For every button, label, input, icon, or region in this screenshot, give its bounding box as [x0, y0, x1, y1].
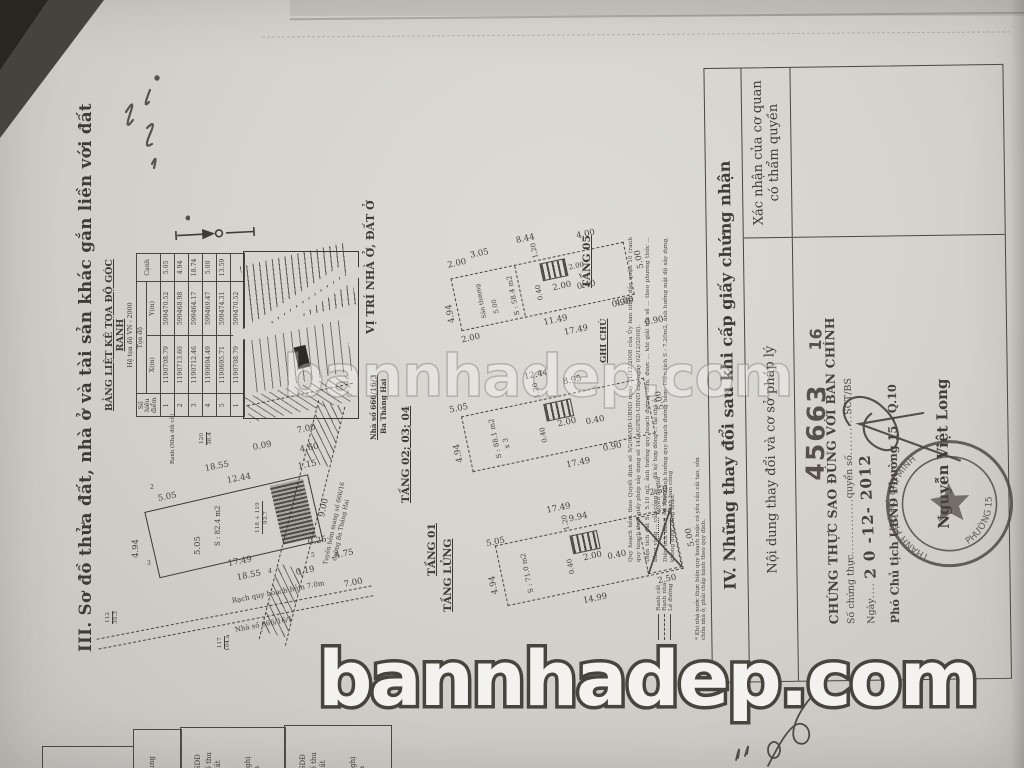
dim: 9.94	[568, 511, 589, 525]
lot-main-marker: 118 + 11993.7	[244, 501, 269, 534]
bottom-partial-box	[133, 729, 182, 768]
legend-block: Ranh cắt Ranh nhà Lề đường Tuyến lộ giới…	[656, 455, 694, 640]
lot-120-area: 38.4	[207, 432, 214, 445]
table-corner-shadow-dark	[0, 0, 48, 70]
bottom-partial-box	[42, 746, 134, 768]
plan-tang05-label: TẦNG 05	[581, 235, 593, 288]
table-row: 41190694.49599469.475.00	[203, 254, 217, 417]
col-point-header: Số hiệuđiểm	[137, 394, 161, 417]
dim: 4.94	[131, 539, 141, 558]
dim: 17.49	[565, 456, 591, 471]
col-coords-header: Tọa độ	[137, 281, 147, 394]
col-x-header: X(m)	[147, 336, 161, 394]
lot-112-number: 112	[105, 611, 113, 624]
dim: 3.05	[469, 247, 490, 261]
table-row: 11190708.79599470.525.05	[161, 254, 175, 417]
seal-bottom-text: PHƯỜNG 15	[963, 491, 998, 550]
legend-item: Ranh ban công	[668, 458, 674, 544]
col2-header-line2: có thẩm quyền	[766, 104, 784, 202]
dim: 18.55	[204, 459, 230, 473]
scanned-land-document-photo: III. Sơ đồ thửa đất, nhà ở và tài sản kh…	[0, 0, 1024, 768]
lot-117-number: 117	[217, 636, 225, 649]
coordinate-table: Số hiệuđiểm Tọa độ Cạnh X(m) Y(m) 111907…	[136, 253, 245, 417]
legend-line-sample	[670, 518, 671, 544]
lot-main-area: 93.7	[263, 511, 270, 524]
watermark-bottom: bannhadep.com	[318, 634, 977, 723]
table-row: 31190712.46599464.1718.74	[189, 254, 203, 417]
lot-main-number: 118 + 119	[255, 501, 263, 534]
legend-footnote: * Khi nhà nước thực hiện quy hoạch hoặc …	[695, 450, 708, 640]
dim: 17.49	[563, 323, 589, 338]
dim: 11.49	[543, 313, 569, 328]
col2-header-line1: Xác nhận của cơ quan	[749, 80, 767, 225]
scale-symbol	[174, 223, 259, 244]
dim: 5.05	[157, 490, 177, 503]
bottom-fragment: đất	[214, 760, 222, 768]
coordinate-table-title: BẢNG LIỆT KÊ TỌA ĐỘ GÓC RANH	[104, 253, 126, 417]
bottom-fragment: dung	[148, 756, 156, 768]
plan-tang-lung-label: TẦNG LỬNG	[442, 539, 454, 612]
bottom-fragment: số thu	[310, 752, 318, 768]
seal-star	[925, 479, 971, 527]
section4-col1-header: Nội dung thay đổi và cơ sở pháp lý	[744, 238, 799, 682]
lot-120-marker: 12038.4	[188, 432, 213, 445]
corner-point: 3	[147, 560, 151, 567]
dim: 12.44	[226, 471, 252, 485]
lot-112-area: 35.3	[113, 611, 120, 624]
bottom-fragment: QSDĐ	[194, 754, 202, 768]
dim: 0.25	[307, 534, 327, 547]
lot-117-area: 104.a	[225, 635, 232, 651]
lot-112-marker: 11235.3	[94, 611, 119, 624]
ranh-label: Ranh (Nhà đổi cũ)	[170, 414, 176, 464]
table-row: 21190713.60599468.984.94	[175, 254, 189, 417]
legend-column: Tuyến lộ giới Lề đường Ranh ban công	[656, 458, 674, 544]
corner-point: 2	[150, 484, 154, 491]
tang01-area: S : 82.4 m2	[214, 505, 222, 546]
bottom-fragment: số thu	[205, 752, 213, 768]
section4-col2-header: Xác nhận của cơ quan có thẩm quyền	[741, 68, 792, 238]
dim: 0.19	[295, 564, 315, 577]
dim: 4.94	[487, 575, 501, 596]
dim: 4.94	[452, 443, 466, 464]
dim: 2.00	[447, 257, 468, 271]
section4-col2: Xác nhận của cơ quan có thẩm quyền	[741, 65, 1004, 238]
corner-point: 1	[307, 478, 311, 485]
coordinate-table-block: BẢNG LIỆT KÊ TỌA ĐỘ GÓC RANH Hệ tọa độ V…	[104, 253, 251, 417]
page-right-edge-shadow	[1010, 0, 1024, 768]
watermark-center: bannhadep.com	[283, 342, 793, 410]
legend-item: Lề đường	[668, 554, 674, 640]
plan-tang01-label: TẦNG 01	[426, 523, 438, 576]
bottom-fragment: Nghị	[349, 757, 357, 768]
bottom-fragment: QSDĐ	[299, 754, 307, 768]
corner-point: 5	[311, 552, 315, 559]
dim: 1.20	[529, 242, 540, 259]
dim: 14.99	[582, 591, 608, 606]
legend-line-sample	[664, 518, 665, 544]
dim: 0.09	[252, 439, 272, 452]
legend-line-sample	[658, 518, 659, 544]
coordinate-table-subtitle: Hệ tọa độ VN - 2000	[127, 253, 134, 417]
dim: 18.55	[236, 568, 262, 582]
bottom-fragment: đất	[319, 760, 327, 768]
col-edge-header: Cạnh	[137, 254, 161, 282]
col-y-header: Y(m)	[147, 281, 161, 335]
section4-col2-body	[790, 65, 1004, 237]
lot-117-marker: 117104.a	[206, 635, 231, 651]
section4-col1: Nội dung thay đổi và cơ sở pháp lý 45663…	[744, 234, 1011, 682]
faint-fold-line	[262, 31, 1010, 37]
location-map-label: VỊ TRÍ NHÀ Ở, ĐẤT Ở	[364, 200, 377, 334]
bottom-fragment: Nghị	[244, 757, 252, 768]
pencil-scribble	[100, 68, 190, 238]
section4-col1-body: 45663 16 CHỨNG THỰC SAO ĐÚNG VỚI BẢN CHÍ…	[793, 235, 1011, 681]
plan-tang234-label: TẦNG 02; 03; 04	[400, 406, 412, 503]
lot-120-number: 120	[199, 432, 207, 445]
dim: 5.05	[193, 536, 203, 555]
dim: 4.75	[334, 547, 354, 560]
table-row: 51190695.71599474.3113.59	[217, 254, 231, 417]
legend-column: Ranh cắt Ranh nhà Lề đường	[656, 554, 674, 640]
section3-title: III. Sơ đồ thửa đất, nhà ở và tài sản kh…	[76, 103, 95, 652]
corner-point: 4	[268, 568, 272, 575]
